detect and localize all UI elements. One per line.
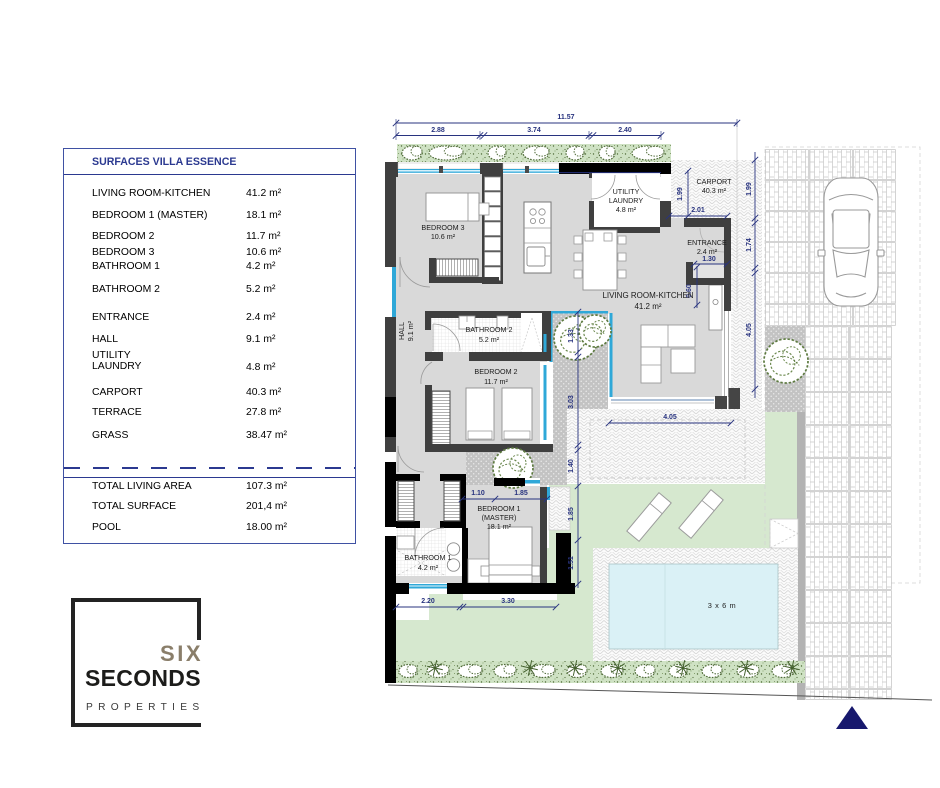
svg-text:BEDROOM 3: BEDROOM 3 <box>421 223 464 232</box>
svg-text:1.85: 1.85 <box>568 507 575 521</box>
svg-text:3.03: 3.03 <box>568 395 575 409</box>
svg-text:2.88: 2.88 <box>431 127 445 134</box>
svg-text:1.85: 1.85 <box>514 490 528 497</box>
svg-text:41.2 m²: 41.2 m² <box>634 302 661 311</box>
svg-text:BEDROOM 1: BEDROOM 1 <box>477 504 520 513</box>
svg-text:LAUNDRY: LAUNDRY <box>609 196 643 205</box>
svg-text:4.05: 4.05 <box>746 323 753 337</box>
svg-text:2.4 m²: 2.4 m² <box>697 247 718 256</box>
svg-text:3.74: 3.74 <box>527 127 541 134</box>
svg-text:2.01: 2.01 <box>691 207 705 214</box>
svg-text:ENTRANCE: ENTRANCE <box>687 238 727 247</box>
svg-text:2.40: 2.40 <box>618 127 632 134</box>
svg-text:3 x 6 m: 3 x 6 m <box>708 601 736 610</box>
svg-text:5.2 m²: 5.2 m² <box>479 335 500 344</box>
svg-text:4.2 m²: 4.2 m² <box>418 563 439 572</box>
svg-text:1.30: 1.30 <box>702 256 716 263</box>
svg-text:BATHROOM 1: BATHROOM 1 <box>405 553 452 562</box>
svg-text:1.74: 1.74 <box>746 238 753 252</box>
svg-text:11.57: 11.57 <box>557 114 574 121</box>
svg-text:2.20: 2.20 <box>421 598 435 605</box>
svg-text:3.30: 3.30 <box>501 598 515 605</box>
svg-text:BEDROOM 2: BEDROOM 2 <box>474 367 517 376</box>
svg-text:9.1 m²: 9.1 m² <box>406 320 415 341</box>
svg-text:4.8 m²: 4.8 m² <box>616 205 637 214</box>
svg-text:UTILITY: UTILITY <box>613 187 640 196</box>
svg-text:CARPORT: CARPORT <box>696 177 732 186</box>
svg-text:18.1 m²: 18.1 m² <box>487 522 512 531</box>
svg-text:BATHROOM 2: BATHROOM 2 <box>466 325 513 334</box>
svg-text:1.10: 1.10 <box>471 490 485 497</box>
svg-text:11.7 m²: 11.7 m² <box>484 377 508 386</box>
svg-text:(MASTER): (MASTER) <box>482 513 517 522</box>
svg-text:HALL: HALL <box>397 322 406 340</box>
svg-text:40.3 m²: 40.3 m² <box>702 186 727 195</box>
svg-text:1.40: 1.40 <box>568 459 575 473</box>
svg-text:10.6 m²: 10.6 m² <box>431 232 456 241</box>
svg-text:1.33: 1.33 <box>568 329 575 343</box>
svg-text:LIVING ROOM-KITCHEN: LIVING ROOM-KITCHEN <box>602 291 693 300</box>
svg-text:1.51: 1.51 <box>568 556 575 570</box>
svg-text:1.99: 1.99 <box>677 187 684 201</box>
svg-text:4.05: 4.05 <box>663 414 677 421</box>
svg-text:1.99: 1.99 <box>746 182 753 196</box>
